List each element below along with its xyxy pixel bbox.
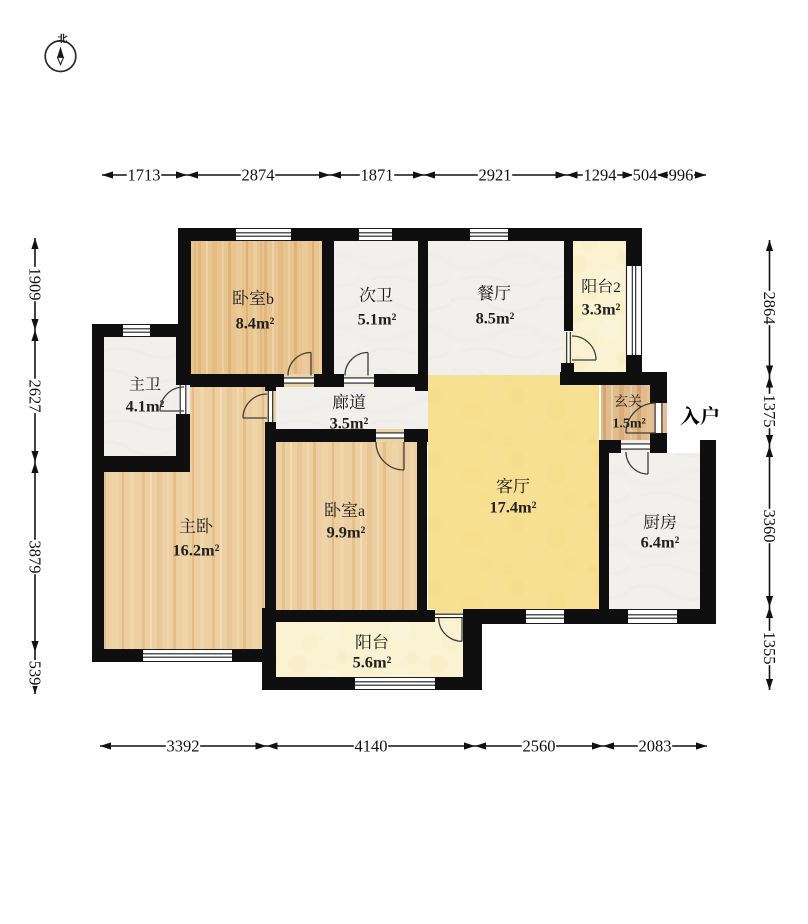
svg-text:5.1m²: 5.1m² — [358, 310, 397, 329]
svg-text:1294: 1294 — [584, 166, 617, 185]
svg-text:17.4m²: 17.4m² — [490, 498, 537, 517]
svg-text:a: a — [358, 503, 365, 520]
svg-text:3360: 3360 — [760, 510, 779, 543]
svg-text:3.3m²: 3.3m² — [582, 300, 621, 319]
svg-text:1375: 1375 — [760, 395, 779, 428]
svg-text:3392: 3392 — [167, 737, 200, 756]
svg-text:b: b — [266, 291, 274, 308]
svg-text:1.5m²: 1.5m² — [612, 417, 645, 432]
svg-text:1713: 1713 — [128, 166, 161, 185]
svg-text:2: 2 — [613, 280, 621, 296]
svg-text:8.4m²: 8.4m² — [236, 314, 275, 333]
svg-text:2874: 2874 — [242, 166, 275, 185]
svg-text:3.5m²: 3.5m² — [330, 414, 369, 433]
svg-text:1355: 1355 — [760, 632, 779, 665]
svg-text:504: 504 — [633, 166, 658, 185]
svg-text:996: 996 — [669, 166, 694, 185]
svg-text:5.6m²: 5.6m² — [353, 653, 392, 672]
svg-text:3879: 3879 — [25, 541, 44, 574]
svg-text:539: 539 — [25, 661, 44, 686]
svg-text:1871: 1871 — [361, 166, 394, 185]
svg-text:2627: 2627 — [25, 380, 44, 413]
svg-text:9.9m²: 9.9m² — [327, 523, 366, 542]
svg-text:4140: 4140 — [355, 737, 388, 756]
svg-text:2921: 2921 — [479, 166, 512, 185]
svg-text:16.2m²: 16.2m² — [173, 541, 220, 560]
svg-text:6.4m²: 6.4m² — [641, 533, 680, 552]
svg-text:2560: 2560 — [523, 737, 556, 756]
svg-text:1909: 1909 — [25, 268, 44, 301]
svg-text:8.5m²: 8.5m² — [476, 309, 515, 328]
svg-text:2083: 2083 — [639, 737, 672, 756]
svg-text:2864: 2864 — [760, 292, 779, 325]
svg-text:4.1m²: 4.1m² — [126, 397, 165, 416]
